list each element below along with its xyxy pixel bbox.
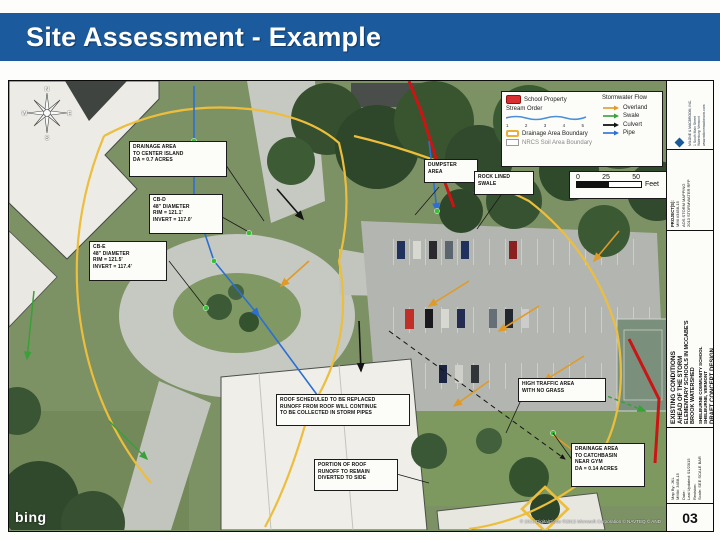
overland-arrow-icon (602, 105, 620, 111)
legend-school-property-label: School Property (524, 97, 567, 103)
svg-text:E: E (67, 111, 72, 118)
legend-pipe-label: Pipe (623, 130, 635, 136)
map-copyright: © 2013 DigitalGlobe ©2013 Microsoft Corp… (309, 519, 661, 524)
scale-bar: 0 25 50 Feet (569, 171, 669, 199)
callout-dumpster-area: DUMPSTER AREA (424, 159, 478, 183)
sheet-title: EXISTING CONDITIONS (670, 234, 677, 424)
nrcs-boundary-swatch (506, 139, 519, 146)
map-fields: Map By: JKL MMI#: 3458-15 Date: Last Upd… (670, 431, 702, 500)
callout-high-traffic: HIGH TRAFFIC AREA WITH NO GRASS (518, 378, 606, 402)
pipe-arrow-icon (602, 130, 620, 136)
svg-text:N: N (45, 86, 50, 93)
project-lines: MMI #3458-15 AOS STORM MAPPING 2013 STOR… (675, 153, 692, 227)
stream-order-values: 1 2 3 4 5 (506, 123, 584, 128)
draft-label: DRAFT CONCEPT DESIGN (710, 234, 713, 424)
map-legend: School Property Stream Order 1 2 3 4 5 D… (501, 91, 663, 167)
slide-title-bar: Site Assessment - Example (0, 13, 720, 61)
compass-rose-icon: NE SW (21, 83, 73, 141)
legend-overland-label: Overland (623, 105, 647, 111)
titleblock-firm-section: MILONE & MACBROOM, INC. 1 South Main Str… (667, 81, 713, 150)
svg-text:W: W (21, 111, 28, 118)
callout-drainage-center-island: DRAINAGE AREA TO CENTER ISLAND DA = 0.7 … (129, 141, 227, 177)
sheet-number: 03 (682, 510, 698, 526)
callout-cb-e: CB-E 48" DIAMETER RIM = 121.5' INVERT = … (89, 241, 167, 281)
legend-culvert-label: Culvert (623, 122, 642, 128)
titleblock-sidebar: MILONE & MACBROOM, INC. 1 South Main Str… (666, 81, 713, 531)
legend-nrcs-label: NRCS Soil Area Boundary (522, 140, 592, 146)
titleblock-fields-section: Map By: JKL MMI#: 3458-15 Date: Last Upd… (667, 428, 713, 504)
scale-bar-graphic (576, 181, 642, 188)
callout-rock-lined-swale: ROCK LINED SWALE (474, 171, 534, 195)
site-map: NE SW School Property Stream Order 1 2 3 (8, 80, 714, 532)
legend-swale-label: Swale (623, 113, 639, 119)
legend-stream-order-label: Stream Order (506, 106, 602, 112)
firm-info: MILONE & MACBROOM, INC. 1 South Main Str… (688, 84, 706, 146)
legend-drainage-boundary-label: Drainage Area Boundary (522, 131, 588, 137)
scale-unit: Feet (645, 181, 659, 188)
site-name: SHELBURNE COMMUNITY SCHOOL SHELBURNE, VE… (698, 234, 709, 424)
firm-logo-icon (675, 138, 685, 148)
drainage-boundary-swatch (506, 130, 519, 137)
titleblock-sheet-section: 03 (667, 504, 713, 531)
scale-ticks: 0 25 50 (576, 174, 640, 181)
callout-roof-portion: PORTION OF ROOF RUNOFF TO REMAIN DIVERTE… (314, 459, 398, 491)
bing-logo: bing (15, 509, 47, 525)
titleblock-project-section: PROJECT(S): MMI #3458-15 AOS STORM MAPPI… (667, 150, 713, 231)
callout-roof-replaced: ROOF SCHEDULED TO BE REPLACED RUNOFF FRO… (276, 394, 410, 426)
culvert-arrow-icon (602, 122, 620, 128)
school-property-swatch (506, 95, 521, 104)
svg-text:S: S (45, 135, 50, 141)
callout-cb-d: CB-D 48" DIAMETER RIM = 121.1' INVERT = … (149, 194, 223, 234)
stream-order-line (506, 114, 588, 121)
stormwater-flow-header: Stormwater Flow (602, 95, 658, 101)
titleblock-title-section: EXISTING CONDITIONS AHEAD OF THE STORM E… (667, 231, 713, 428)
project-subtitle: ELEMENTARY SCHOOLS IN MCCABE'S BROOK WAT… (684, 234, 697, 424)
slide-title: Site Assessment - Example (0, 22, 381, 53)
presentation-slide: Site Assessment - Example (0, 0, 720, 540)
swale-arrow-icon (602, 113, 620, 119)
callout-drainage-gym: DRAINAGE AREA TO CATCHBASIN NEAR GYM DA … (571, 443, 645, 487)
